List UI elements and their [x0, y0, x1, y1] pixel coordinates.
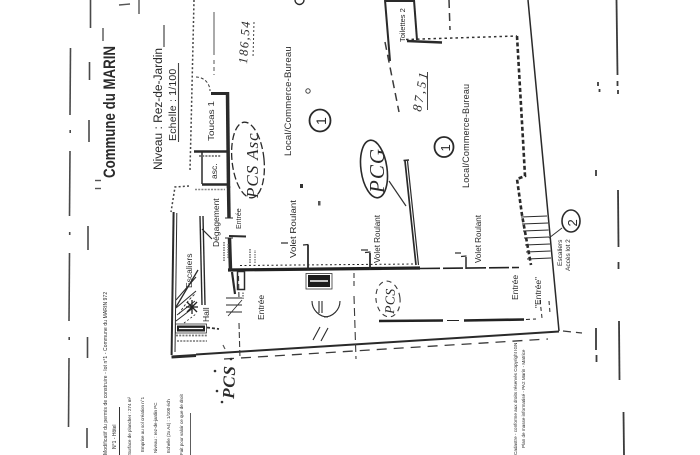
svg-text:Entrée: Entrée	[510, 275, 520, 300]
svg-text:Entrée: Entrée	[256, 295, 266, 320]
svg-text:Volet Roulant: Volet Roulant	[373, 214, 382, 263]
svg-text:Accès lot 2: Accès lot 2	[565, 239, 572, 271]
svg-text:Niveau : Rez-de-Jardin: Niveau : Rez-de-Jardin	[153, 48, 165, 170]
svg-text:Escaliers: Escaliers	[184, 254, 194, 288]
svg-text:Volet Roulant: Volet Roulant	[289, 199, 298, 258]
svg-text:Entrée: Entrée	[236, 208, 243, 229]
svg-text:Fait pour valoir ce que de dro: Fait pour valoir ce que de droit	[179, 393, 184, 455]
svg-text:Dégagement: Dégagement	[211, 198, 221, 247]
svg-text:2: 2	[565, 219, 580, 226]
svg-text:Modificatif du permis de const: Modificatif du permis de construire - lo…	[103, 292, 109, 455]
svg-text:PCG: PCG	[365, 148, 389, 194]
svg-text:Local/Commerce-Bureau: Local/Commerce-Bureau	[461, 84, 471, 188]
svg-text:PCS Asc: PCS Asc	[243, 132, 262, 199]
svg-text:PCS: PCS	[219, 365, 239, 400]
svg-text:Echelle (2x A4) : 1/100 éch: Echelle (2x A4) : 1/100 éch	[166, 399, 171, 453]
svg-text:Hall: Hall	[201, 307, 211, 322]
svg-text:Toucas 1: Toucas 1	[206, 101, 216, 141]
svg-text:"Entrée": "Entrée"	[533, 277, 543, 308]
svg-text:PCS: PCS	[382, 288, 398, 315]
svg-text:Emprise au sol création n°1: Emprise au sol création n°1	[140, 396, 145, 452]
svg-text:Niveau : rez-de-jardin PC: Niveau : rez-de-jardin PC	[153, 402, 158, 453]
svg-text:Surface de plancher : 274 m²: Surface de plancher : 274 m²	[127, 396, 132, 455]
svg-text:Cadastre - conforme aux droits: Cadastre - conforme aux droits réservés …	[513, 343, 518, 455]
svg-text:1: 1	[313, 117, 329, 125]
svg-text:Echelle : 1/100: Echelle : 1/100	[167, 69, 179, 141]
svg-text:Local/Commerce-Bureau: Local/Commerce-Bureau	[283, 46, 294, 156]
svg-text:Plan de masse informatisé - PA: Plan de masse informatisé - PA2 Marin - …	[521, 349, 526, 448]
svg-text:Toilettes 2: Toilettes 2	[398, 8, 407, 42]
svg-text:Commune du MARIN: Commune du MARIN	[101, 46, 119, 178]
svg-text:N°1 - Hôtel: N°1 - Hôtel	[112, 424, 118, 449]
svg-text:asc.: asc.	[209, 163, 219, 179]
svg-text:Escaliers: Escaliers	[557, 239, 564, 266]
svg-text:1: 1	[438, 144, 453, 151]
svg-text:Volet Roulant: Volet Roulant	[474, 214, 483, 263]
